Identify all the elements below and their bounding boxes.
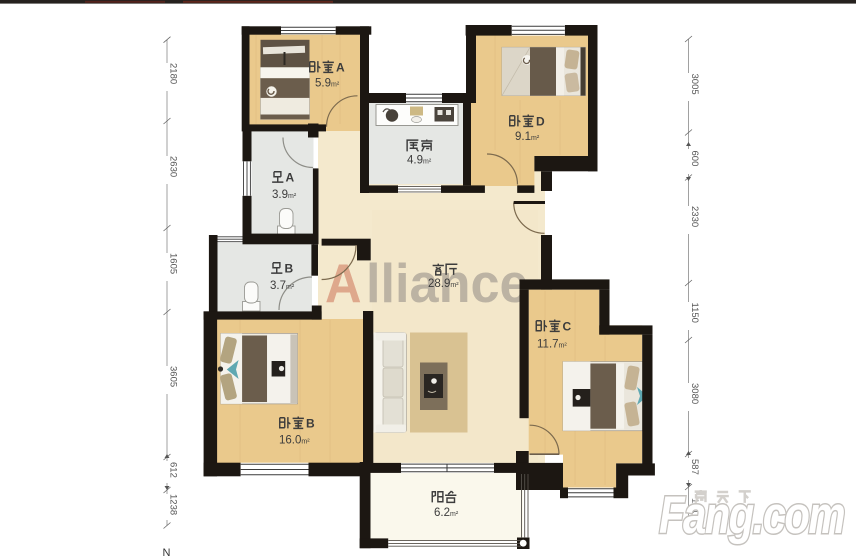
svg-text:A: A <box>336 61 345 75</box>
svg-text:1605: 1605 <box>168 253 179 274</box>
svg-text:2630: 2630 <box>168 156 179 177</box>
svg-text:Fang.com: Fang.com <box>659 486 844 545</box>
svg-text:A: A <box>286 171 295 185</box>
svg-text:2180: 2180 <box>168 63 179 84</box>
svg-text:B: B <box>306 417 315 431</box>
svg-text:C: C <box>563 320 572 334</box>
svg-text:3605: 3605 <box>168 366 179 387</box>
svg-text:3005: 3005 <box>689 74 700 95</box>
svg-text:1238: 1238 <box>168 494 179 515</box>
svg-text:612: 612 <box>168 462 179 478</box>
svg-text:A: A <box>325 253 362 314</box>
svg-text:600: 600 <box>689 151 700 167</box>
svg-text:1150: 1150 <box>689 303 700 323</box>
svg-text:D: D <box>536 115 545 129</box>
svg-text:3080: 3080 <box>689 383 700 404</box>
svg-text:N: N <box>163 547 171 559</box>
svg-text:B: B <box>285 262 294 276</box>
svg-text:2330: 2330 <box>689 206 700 227</box>
svg-text:587: 587 <box>689 459 700 475</box>
